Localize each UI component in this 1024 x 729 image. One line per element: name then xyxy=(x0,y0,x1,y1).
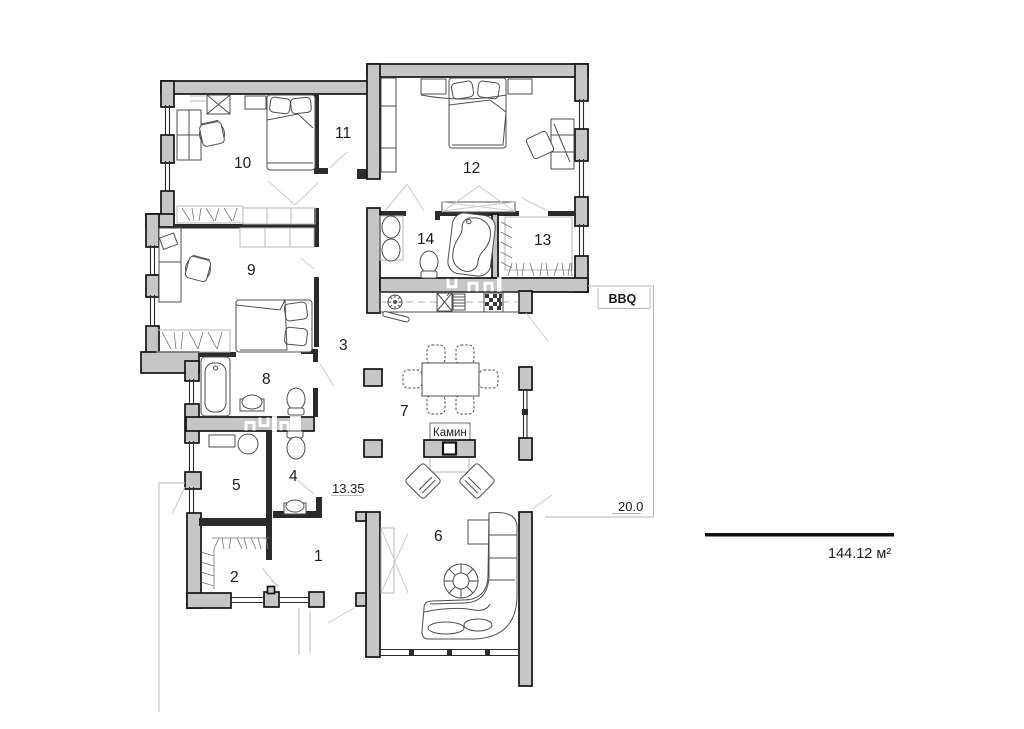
svg-text:8: 8 xyxy=(262,371,271,388)
svg-text:13.35: 13.35 xyxy=(332,481,365,496)
svg-text:9: 9 xyxy=(247,262,256,279)
svg-text:2: 2 xyxy=(230,569,239,586)
svg-text:12: 12 xyxy=(463,160,480,177)
svg-text:4: 4 xyxy=(289,468,298,485)
svg-text:1: 1 xyxy=(314,548,323,565)
svg-text:6: 6 xyxy=(434,528,443,545)
svg-text:7: 7 xyxy=(400,403,409,420)
svg-text:BBQ: BBQ xyxy=(609,292,637,306)
svg-text:10: 10 xyxy=(234,155,252,172)
svg-text:11: 11 xyxy=(335,125,351,142)
svg-text:5: 5 xyxy=(232,477,241,494)
svg-text:Камин: Камин xyxy=(433,427,467,439)
svg-text:20.0: 20.0 xyxy=(618,499,643,514)
svg-text:144.12 м²: 144.12 м² xyxy=(828,546,891,562)
svg-text:13: 13 xyxy=(534,232,551,249)
svg-text:14: 14 xyxy=(417,231,435,248)
svg-text:3: 3 xyxy=(339,337,348,354)
